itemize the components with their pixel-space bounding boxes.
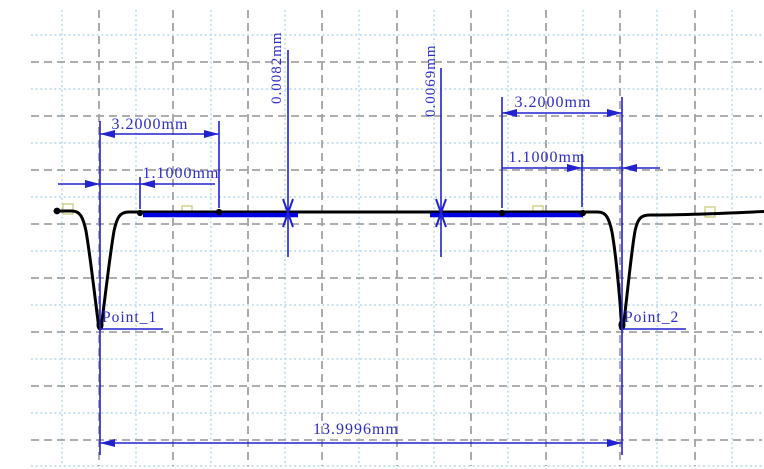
dimension-left-width: 3.2000mm [100, 116, 219, 138]
dimension-label-left-width[interactable]: 3.2000mm [112, 116, 189, 133]
dimension-label-right-offset[interactable]: 1.1000mm [509, 149, 586, 166]
node-dot [580, 210, 586, 216]
node-dot [499, 210, 505, 216]
dimension-label-overall[interactable]: 13.9996mm [313, 421, 399, 438]
dimension-label-step-left[interactable]: 0.0082mm [269, 31, 285, 104]
dimension-overall: 13.9996mm [100, 421, 622, 447]
measurement-canvas[interactable]: 3.2000mm 1.1000mm 0.0082mm 0.0069mm 3.20… [0, 0, 764, 469]
dimension-label-right-width[interactable]: 3.2000mm [515, 94, 592, 111]
dimension-right-offset: 1.1000mm [502, 149, 660, 172]
arrowhead-right-icon [85, 180, 100, 188]
point-2-label[interactable]: Point_2 [624, 309, 679, 326]
point-1-label[interactable]: Point_1 [102, 309, 157, 326]
node-dot [216, 209, 222, 215]
dimension-label-step-right[interactable]: 0.0069mm [423, 44, 439, 117]
arrowhead-right-icon [204, 130, 219, 138]
grip-handle[interactable] [705, 207, 715, 217]
dimension-left-offset: 1.1000mm [58, 165, 219, 188]
grid-major-vertical-lines [99, 10, 695, 466]
grid [31, 10, 762, 466]
point-2-annotation: Point_2 [622, 309, 686, 329]
dimension-right-width: 3.2000mm [502, 94, 622, 117]
node-dot [137, 210, 143, 216]
profile-measurement-view: 3.2000mm 1.1000mm 0.0082mm 0.0069mm 3.20… [0, 0, 764, 469]
dimension-label-left-offset[interactable]: 1.1000mm [143, 165, 220, 182]
dimension-step-right: 0.0069mm [423, 44, 446, 257]
trace-start-dot [54, 208, 61, 215]
point-1-annotation: Point_1 [100, 309, 163, 329]
